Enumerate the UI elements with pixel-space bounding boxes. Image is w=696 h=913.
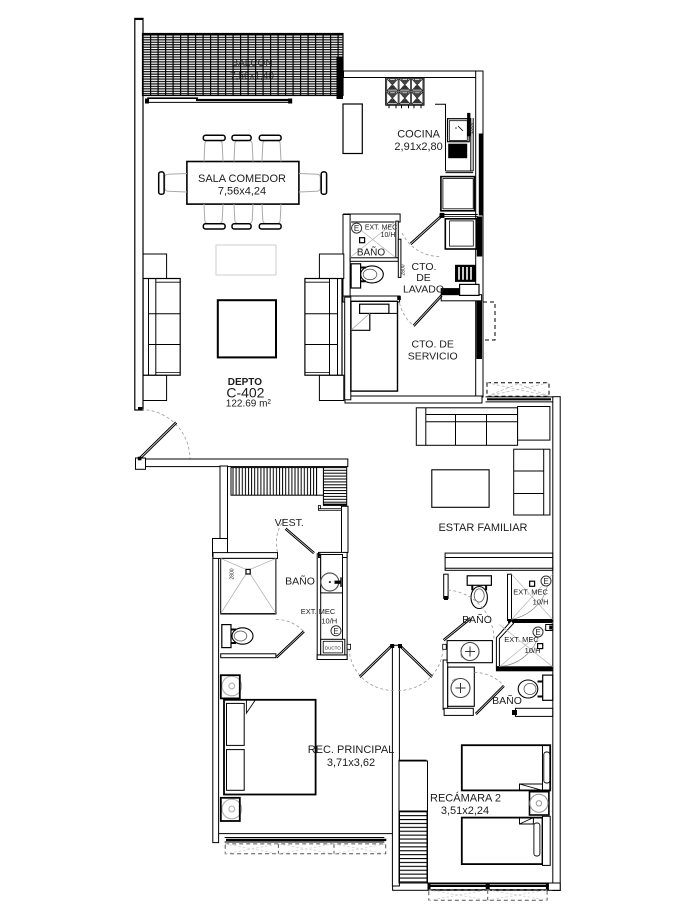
svg-text:7,56x4,24: 7,56x4,24 — [218, 186, 266, 198]
svg-text:BAÑO: BAÑO — [492, 694, 522, 707]
svg-text:LAVADO: LAVADO — [403, 284, 444, 296]
svg-text:E: E — [333, 627, 338, 636]
svg-text:ESTAR FAMILIAR: ESTAR FAMILIAR — [438, 522, 527, 534]
svg-text:BAÑO: BAÑO — [357, 246, 386, 259]
svg-text:EXT. MEC: EXT. MEC — [301, 607, 336, 616]
svg-text:10/H: 10/H — [321, 617, 337, 626]
svg-text:DUCTO: DUCTO — [325, 646, 341, 651]
svg-text:10/H: 10/H — [533, 598, 549, 607]
svg-text:RECÁMARA 2: RECÁMARA 2 — [430, 792, 501, 805]
svg-text:2800: 2800 — [468, 122, 474, 133]
svg-text:122.69 m²: 122.69 m² — [226, 399, 272, 410]
svg-text:E: E — [543, 577, 548, 586]
svg-text:SERVICIO: SERVICIO — [408, 350, 458, 362]
svg-text:2800: 2800 — [230, 568, 236, 579]
svg-text:EXT. MEC: EXT. MEC — [513, 588, 548, 597]
svg-text:10/H: 10/H — [525, 646, 541, 655]
svg-text:COCINA: COCINA — [397, 129, 440, 141]
svg-text:EXT. MEC: EXT. MEC — [504, 635, 539, 644]
svg-text:2,91x2,80: 2,91x2,80 — [394, 141, 442, 153]
svg-text:10/H: 10/H — [381, 232, 396, 239]
svg-text:7,56x1,40: 7,56x1,40 — [230, 71, 274, 82]
svg-text:3,71x3,62: 3,71x3,62 — [327, 757, 375, 769]
svg-text:E: E — [354, 224, 359, 233]
svg-text:VEST.: VEST. — [275, 517, 304, 529]
svg-text:CTO. DE: CTO. DE — [411, 339, 453, 351]
svg-text:BAÑO: BAÑO — [285, 575, 315, 588]
svg-text:SALA COMEDOR: SALA COMEDOR — [198, 173, 286, 185]
svg-text:BAÑO: BAÑO — [462, 613, 492, 626]
svg-text:BALCÓN: BALCÓN — [231, 56, 272, 69]
svg-text:EXT. MEC: EXT. MEC — [365, 225, 397, 232]
svg-text:2800: 2800 — [401, 264, 407, 275]
svg-text:REC. PRINCIPAL: REC. PRINCIPAL — [308, 744, 395, 756]
svg-text:DE: DE — [416, 272, 431, 284]
svg-text:3,51x2,24: 3,51x2,24 — [441, 805, 489, 817]
